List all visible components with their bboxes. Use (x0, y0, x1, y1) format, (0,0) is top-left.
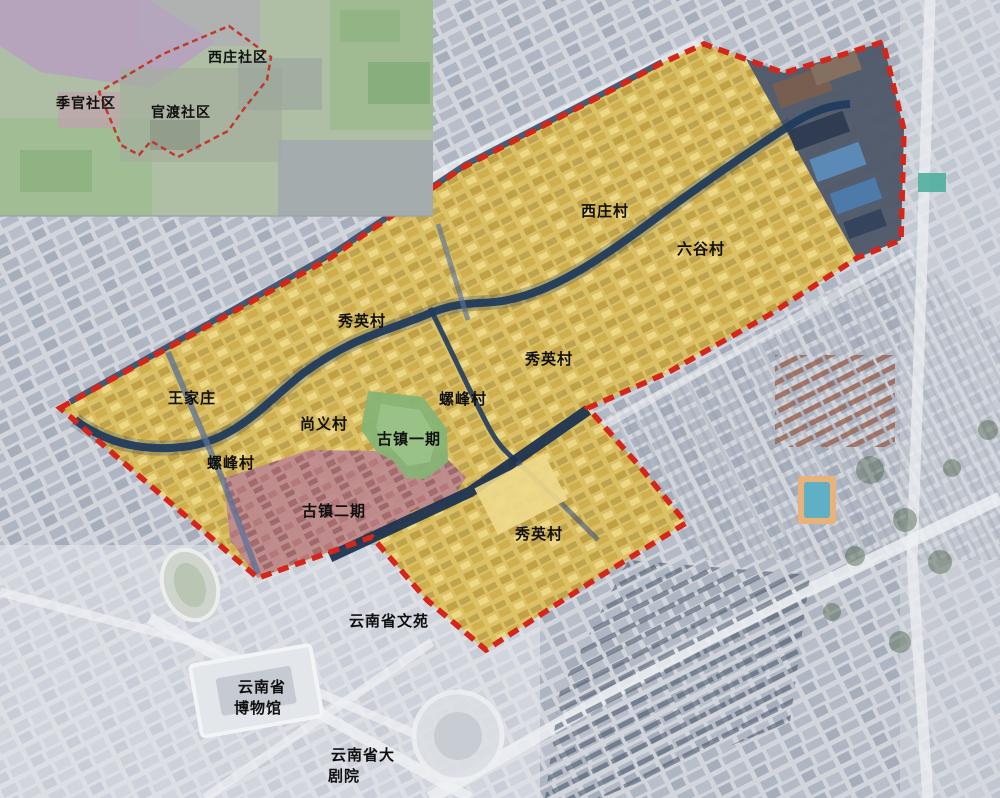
tree-cluster (845, 546, 865, 566)
tree-cluster (856, 456, 884, 484)
label-yunnan-theater-line1: 云南省大 (331, 746, 395, 764)
label-jiguan-community: 季官社区 (55, 95, 116, 112)
inset-purple-patch2 (140, 0, 260, 46)
map-canvas: 西庄村 六谷村 秀英村 秀英村 王家庄 螺峰村 尚义村 古镇一期 螺峰村 古镇二… (0, 0, 1000, 798)
label-luofeng-village-west: 螺峰村 (207, 454, 255, 472)
label-xiuying-village-center: 秀英村 (524, 350, 573, 368)
label-liugu-village: 六谷村 (677, 240, 725, 258)
tree-cluster (889, 631, 911, 653)
inset-green-block (340, 10, 400, 42)
label-yunnan-museum-line1: 云南省 (238, 678, 286, 696)
red-roof-rows (775, 355, 895, 447)
label-guzhen-phase1: 古镇一期 (377, 430, 441, 448)
label-guzhen-phase2: 古镇二期 (302, 502, 366, 520)
label-luofeng-village-east: 螺峰村 (439, 390, 487, 408)
inset-green-block (368, 62, 430, 104)
theater-building (414, 692, 502, 780)
label-xiuying-village-south: 秀英村 (514, 525, 563, 543)
label-xizhuang-village: 西庄村 (581, 202, 629, 220)
tree-cluster (928, 550, 952, 574)
label-yunnan-museum-line2: 博物馆 (234, 699, 282, 717)
label-xizhuang-community: 西庄社区 (208, 49, 268, 66)
label-shangyi-village: 尚义村 (300, 415, 348, 433)
tree-cluster (823, 603, 841, 621)
tree-cluster (893, 508, 917, 532)
label-xiuying-village-north: 秀英村 (337, 312, 386, 330)
inset-gray-se (278, 140, 433, 216)
pool-water (804, 482, 830, 518)
inset-green-block (20, 150, 92, 192)
label-yunnan-theater-line2: 剧院 (328, 767, 360, 785)
theater-dome (434, 712, 482, 760)
label-wangjiazhuang: 王家庄 (168, 389, 216, 407)
inset-dark-spot (150, 120, 200, 150)
swimming-pool (798, 476, 836, 524)
tree-cluster (978, 420, 998, 440)
label-yunnan-wenyuan: 云南省文苑 (349, 612, 429, 630)
inset-map: 西庄社区 季官社区 官渡社区 (0, 0, 433, 216)
planning-map-figure: 西庄村 六谷村 秀英村 秀英村 王家庄 螺峰村 尚义村 古镇一期 螺峰村 古镇二… (0, 0, 1000, 798)
tree-cluster (943, 459, 961, 477)
label-guandu-community: 官渡社区 (151, 104, 211, 121)
sports-court (918, 173, 946, 192)
